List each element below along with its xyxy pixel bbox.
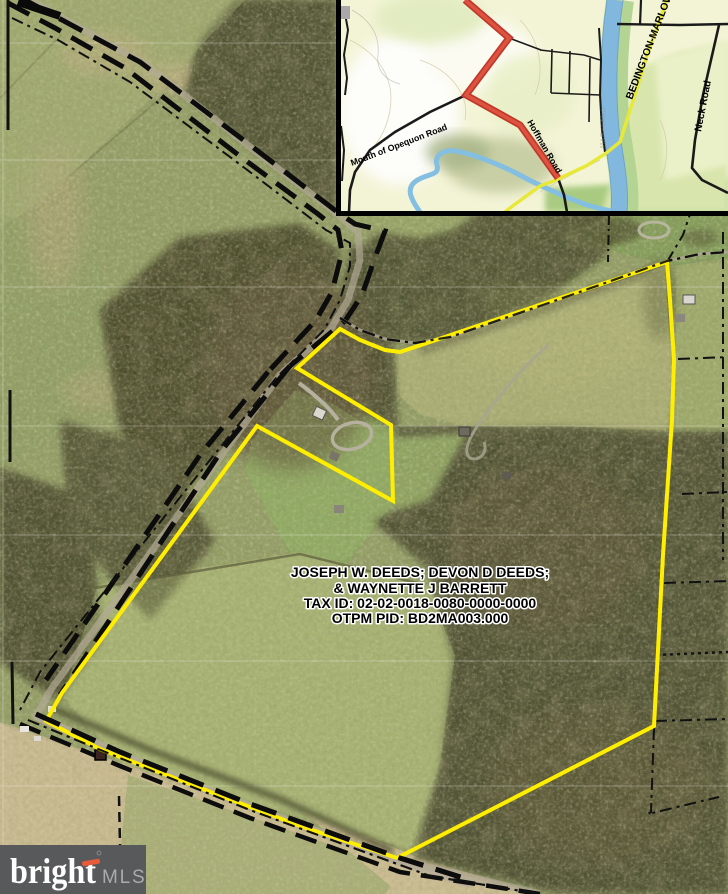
svg-text:OTPM PID: BD2MA003.000: OTPM PID: BD2MA003.000 [332, 610, 509, 626]
svg-text:TAX ID: 02-02-0018-0080-0000-0: TAX ID: 02-02-0018-0080-0000-0000 [304, 595, 537, 611]
svg-text:JOSEPH W. DEEDS; DEVON D DEEDS: JOSEPH W. DEEDS; DEVON D DEEDS; [291, 564, 549, 580]
svg-text:& WAYNETTE J BARRETT: & WAYNETTE J BARRETT [334, 580, 507, 596]
svg-text:MLS: MLS [102, 867, 146, 888]
svg-text:bright: bright [10, 851, 96, 891]
